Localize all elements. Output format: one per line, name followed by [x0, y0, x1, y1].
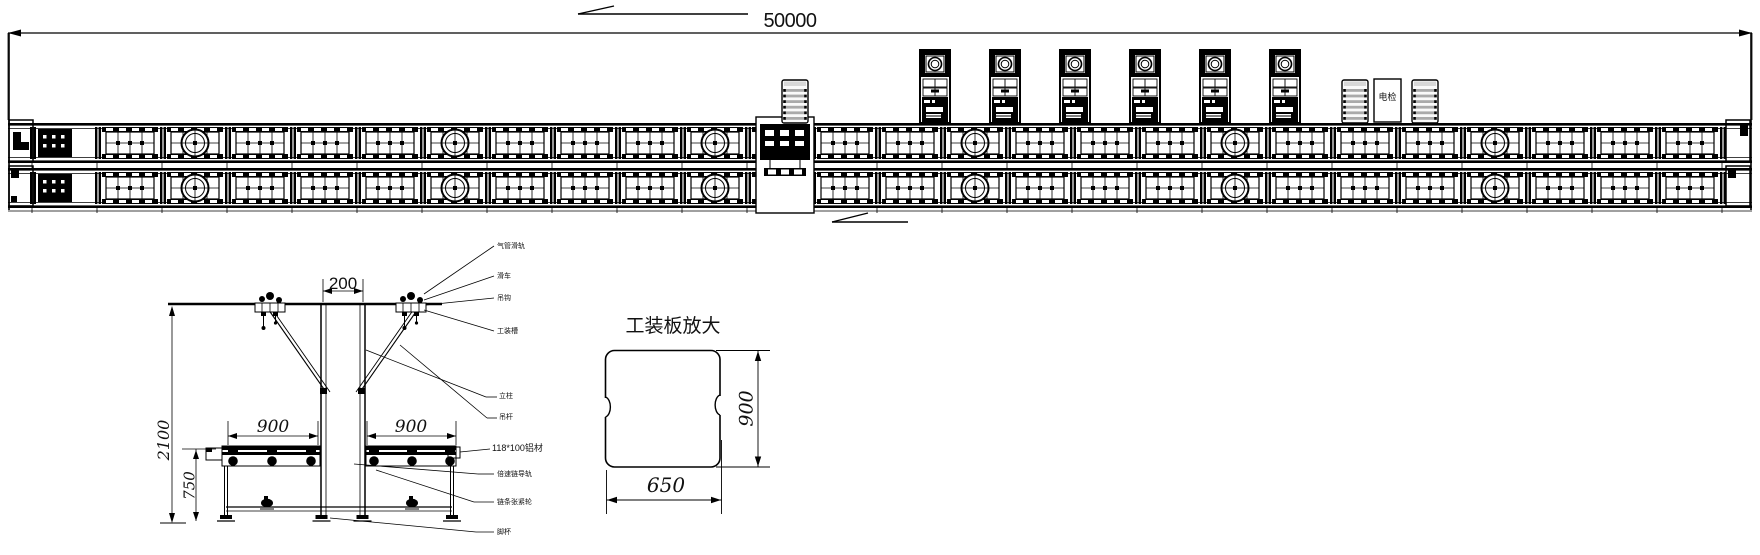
- conveyor-module: [1467, 127, 1523, 159]
- conveyor-module: [427, 172, 483, 204]
- callout-foot-cup: 脚杯: [497, 529, 511, 536]
- dim-overall-length: 50000: [740, 11, 840, 31]
- conveyor-module: [1142, 172, 1198, 204]
- dim-arrowhead: [755, 457, 761, 467]
- conveyor-module: [947, 127, 1003, 159]
- conveyor-module: [1012, 172, 1068, 204]
- conveyor-module: [232, 127, 288, 159]
- conveyor-module: [1077, 172, 1133, 204]
- tower-machine-2: [990, 50, 1020, 123]
- transfer-station: [756, 117, 814, 213]
- conveyor-module: [622, 127, 678, 159]
- conveyor-module: [882, 127, 938, 159]
- conveyor-module: [1142, 127, 1198, 159]
- conveyor-module: [102, 127, 158, 159]
- conveyor-module: [947, 172, 1003, 204]
- conveyor-module: [1272, 127, 1328, 159]
- conveyor-module: [1077, 127, 1133, 159]
- conveyor-module: [1532, 127, 1588, 159]
- callout-trolley: 滑车: [497, 273, 511, 280]
- callout-air-rail: 气管滑轨: [497, 243, 525, 250]
- conveyor-module: [297, 127, 353, 159]
- dim-arrowhead: [367, 433, 376, 439]
- end-station-right: [1726, 33, 1751, 210]
- conveyor-module: [1467, 172, 1523, 204]
- conveyor-module: [102, 172, 158, 204]
- stand-legs: [217, 466, 461, 521]
- conveyor-module: [167, 172, 223, 204]
- callout-column: 立柱: [499, 393, 513, 400]
- conveyor-module: [1207, 172, 1263, 204]
- conveyor-module: [1597, 172, 1653, 204]
- tower-machine-6: [1270, 50, 1300, 123]
- drawing-sheet: 50000 电检 200 2100 750 900 900 气管滑轨 滑车 吊钩…: [0, 0, 1760, 555]
- dim-arrowhead: [607, 497, 617, 503]
- tower-machine-5: [1200, 50, 1230, 123]
- conveyor-module: [362, 127, 418, 159]
- conveyor-module: [362, 172, 418, 204]
- callout-tension-wheel: 链条张紧轮: [497, 499, 532, 506]
- conveyor-module: [232, 172, 288, 204]
- conveyor-module: [492, 127, 548, 159]
- conveyor-module: [1532, 172, 1588, 204]
- electric-check-label: 电检: [1374, 93, 1401, 102]
- diagonal-braces: [266, 306, 420, 392]
- rail-bottom: [8, 168, 1752, 213]
- conveyor-module: [167, 127, 223, 159]
- callout-pallet-slot: 工装槽: [497, 328, 518, 335]
- rail-top: [8, 123, 1752, 168]
- conveyor-module: [1662, 127, 1718, 159]
- callout-alu-profile: 118*100铝材: [492, 444, 543, 453]
- dim-conveyor-height: 750: [183, 456, 198, 516]
- callout-chain-guide: 倍速链导轨: [497, 471, 532, 478]
- assembly-line-plan: [8, 6, 1752, 222]
- conveyor-module: [1012, 127, 1068, 159]
- conveyor-module: [882, 172, 938, 204]
- rail-section-right: [366, 446, 456, 466]
- tower-machine-4: [1130, 50, 1160, 123]
- cad-canvas: [0, 0, 1760, 555]
- hanger-right: [396, 292, 426, 330]
- dim-arrowhead: [228, 433, 237, 439]
- dim-arrowhead: [309, 433, 318, 439]
- ladder-rack-1: [782, 80, 808, 123]
- dim-total-height: 2100: [156, 410, 172, 470]
- support-column: [320, 304, 365, 515]
- rail-section-left: [222, 446, 320, 466]
- conveyor-module: [427, 127, 483, 159]
- detail-title: 工装板放大: [608, 317, 738, 336]
- conveyor-module: [687, 127, 743, 159]
- conveyor-module: [38, 174, 72, 202]
- conveyor-module: [297, 172, 353, 204]
- dim-arrowhead: [169, 513, 175, 523]
- dim-column-width: 200: [318, 275, 368, 292]
- callout-rod: 吊杆: [499, 414, 513, 421]
- conveyor-module: [557, 127, 613, 159]
- conveyor-module: [1402, 172, 1458, 204]
- end-station-left: [9, 33, 33, 210]
- conveyor-module: [817, 127, 873, 159]
- callout-hook: 吊钩: [497, 295, 511, 302]
- conveyor-module: [1207, 127, 1263, 159]
- tower-machine-3: [1060, 50, 1090, 123]
- conveyor-module: [38, 129, 72, 157]
- dim-arrowhead: [8, 30, 21, 37]
- ladder-rack-3: [1412, 80, 1438, 123]
- conveyor-module: [1337, 172, 1393, 204]
- dim-arrowhead: [711, 497, 721, 503]
- conveyor-module: [817, 172, 873, 204]
- dim-span-right: 900: [381, 419, 441, 436]
- dim-span-left: 900: [243, 419, 303, 436]
- conveyor-module: [1662, 172, 1718, 204]
- dim-plate-width: 650: [636, 475, 696, 495]
- conveyor-module: [1402, 127, 1458, 159]
- dim-arrowhead: [1739, 30, 1752, 37]
- pallet-outline: [606, 351, 721, 468]
- conveyor-module: [492, 172, 548, 204]
- tower-machine-1: [920, 50, 950, 123]
- conveyor-module: [1597, 127, 1653, 159]
- dim-arrowhead: [169, 306, 175, 316]
- conveyor-module: [557, 172, 613, 204]
- dim-plate-height: 900: [738, 379, 757, 439]
- conveyor-module: [1272, 172, 1328, 204]
- hanger-left: [255, 292, 285, 330]
- conveyor-module: [622, 172, 678, 204]
- conveyor-module: [1337, 127, 1393, 159]
- dim-arrowhead: [447, 433, 456, 439]
- conveyor-module: [687, 172, 743, 204]
- dim-arrowhead: [755, 351, 761, 361]
- ladder-rack-2: [1342, 80, 1368, 123]
- flow-arrow-bottom: [832, 213, 908, 222]
- flow-arrow-top: [578, 6, 748, 14]
